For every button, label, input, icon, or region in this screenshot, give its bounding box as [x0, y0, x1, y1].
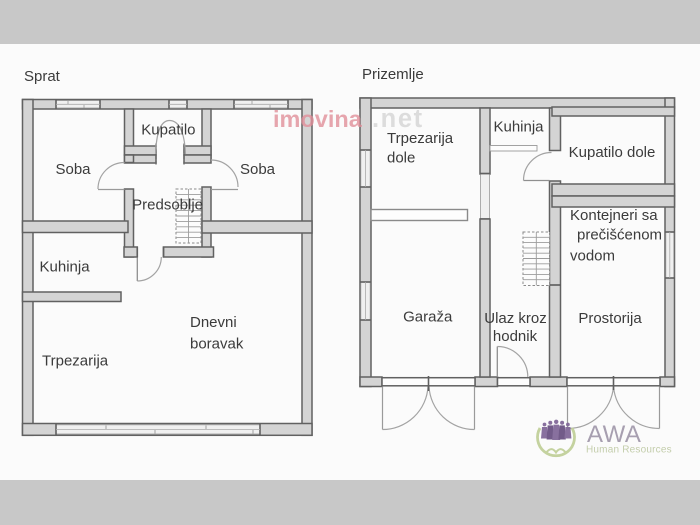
svg-text:Kontejneri sa: Kontejneri sa — [570, 207, 658, 224]
svg-text:imovina: imovina — [273, 106, 363, 132]
svg-text:Kupatilo dole: Kupatilo dole — [569, 144, 656, 161]
svg-text:Dnevni: Dnevni — [190, 314, 237, 331]
svg-text:Ulaz kroz: Ulaz kroz — [484, 310, 547, 327]
svg-text:Kupatilo: Kupatilo — [141, 122, 195, 139]
svg-text:dole: dole — [387, 150, 415, 167]
svg-text:Prostorija: Prostorija — [578, 310, 642, 327]
svg-text:Human Resources: Human Resources — [586, 445, 672, 456]
svg-text:Prizemlje: Prizemlje — [362, 66, 424, 83]
svg-text:boravak: boravak — [190, 336, 244, 353]
svg-text:Garaža: Garaža — [403, 309, 453, 326]
svg-text:Sprat: Sprat — [24, 68, 61, 85]
svg-text:.net: .net — [372, 105, 424, 133]
svg-text:hodnik: hodnik — [493, 328, 538, 345]
svg-text:Soba: Soba — [240, 161, 276, 178]
svg-text:Kuhinja: Kuhinja — [493, 119, 544, 136]
svg-text:prečišćenom: prečišćenom — [577, 227, 662, 244]
svg-text:Predsoblje: Predsoblje — [132, 197, 203, 214]
svg-text:Trpezarija: Trpezarija — [42, 353, 109, 370]
svg-text:vodom: vodom — [570, 248, 615, 265]
svg-text:Soba: Soba — [55, 161, 91, 178]
svg-text:Kuhinja: Kuhinja — [40, 259, 91, 276]
